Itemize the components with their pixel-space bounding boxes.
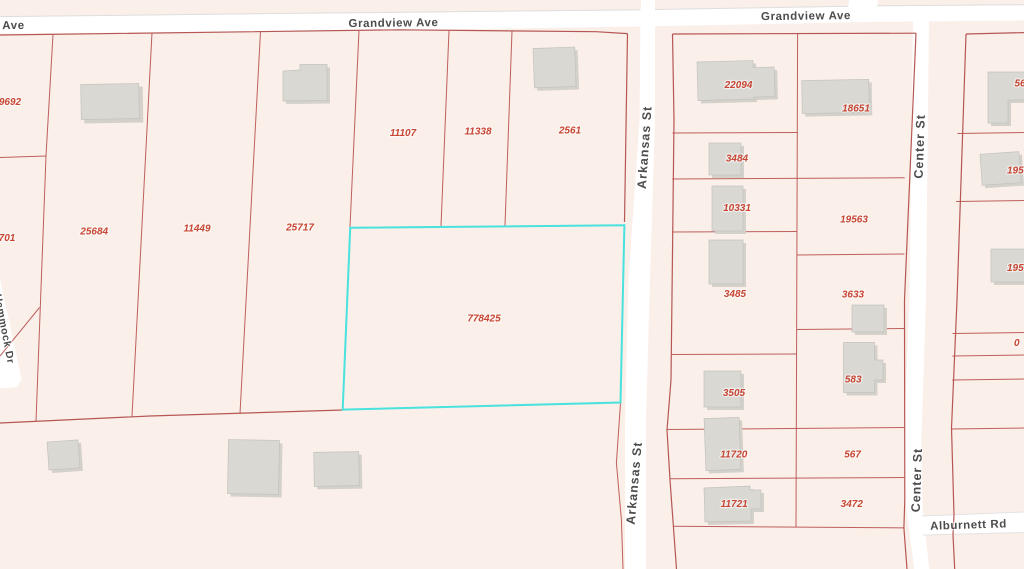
svg-text:195: 195	[1007, 166, 1024, 177]
svg-text:Ave: Ave	[2, 20, 25, 32]
svg-text:3505: 3505	[723, 388, 746, 399]
svg-text:18651: 18651	[842, 104, 870, 115]
svg-text:Grandview Ave: Grandview Ave	[348, 17, 438, 30]
svg-text:25684: 25684	[79, 227, 108, 238]
svg-text:701: 701	[0, 233, 16, 244]
svg-text:Grandview Ave: Grandview Ave	[761, 10, 851, 23]
svg-text:10331: 10331	[723, 203, 751, 214]
svg-text:0: 0	[1014, 338, 1020, 349]
svg-text:25717: 25717	[285, 223, 314, 234]
svg-text:3472: 3472	[841, 499, 864, 510]
svg-text:9692: 9692	[0, 97, 22, 108]
svg-text:3484: 3484	[726, 154, 749, 165]
svg-text:195: 195	[1007, 263, 1024, 274]
svg-text:Alburnett Rd: Alburnett Rd	[930, 518, 1007, 532]
svg-text:3633: 3633	[842, 290, 865, 301]
svg-text:778425: 778425	[467, 314, 501, 325]
svg-text:583: 583	[845, 375, 862, 386]
svg-text:2561: 2561	[558, 126, 582, 137]
svg-text:Center St: Center St	[912, 114, 928, 179]
svg-text:565: 565	[1015, 79, 1024, 90]
svg-text:22094: 22094	[724, 80, 753, 91]
svg-text:11107: 11107	[390, 128, 417, 139]
svg-text:19563: 19563	[840, 215, 868, 226]
svg-text:11721: 11721	[721, 499, 749, 510]
svg-text:11720: 11720	[720, 450, 748, 461]
svg-text:11338: 11338	[464, 127, 492, 138]
svg-text:567: 567	[844, 450, 861, 461]
svg-text:3485: 3485	[724, 289, 747, 300]
svg-text:11449: 11449	[183, 224, 211, 235]
svg-text:Center St: Center St	[909, 447, 925, 512]
